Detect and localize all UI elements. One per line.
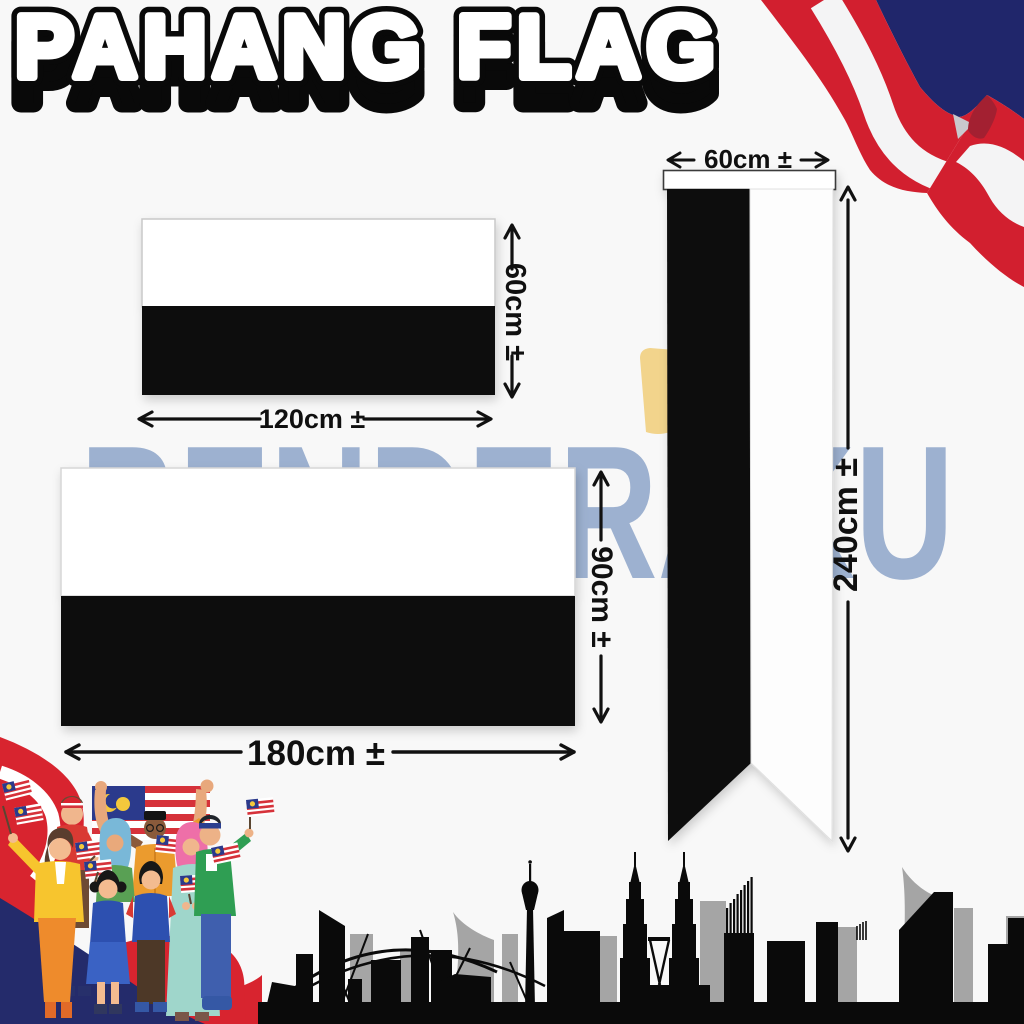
svg-text:180cm ±: 180cm ±	[247, 734, 385, 773]
svg-text:240cm ±: 240cm ±	[827, 458, 865, 592]
svg-text:90cm ±: 90cm ±	[585, 546, 618, 648]
svg-text:PAHANG FLAG: PAHANG FLAG	[15, 0, 715, 96]
svg-text:120cm ±: 120cm ±	[259, 404, 366, 434]
svg-text:60cm ±: 60cm ±	[704, 144, 792, 174]
svg-text:60cm ±: 60cm ±	[499, 263, 531, 361]
